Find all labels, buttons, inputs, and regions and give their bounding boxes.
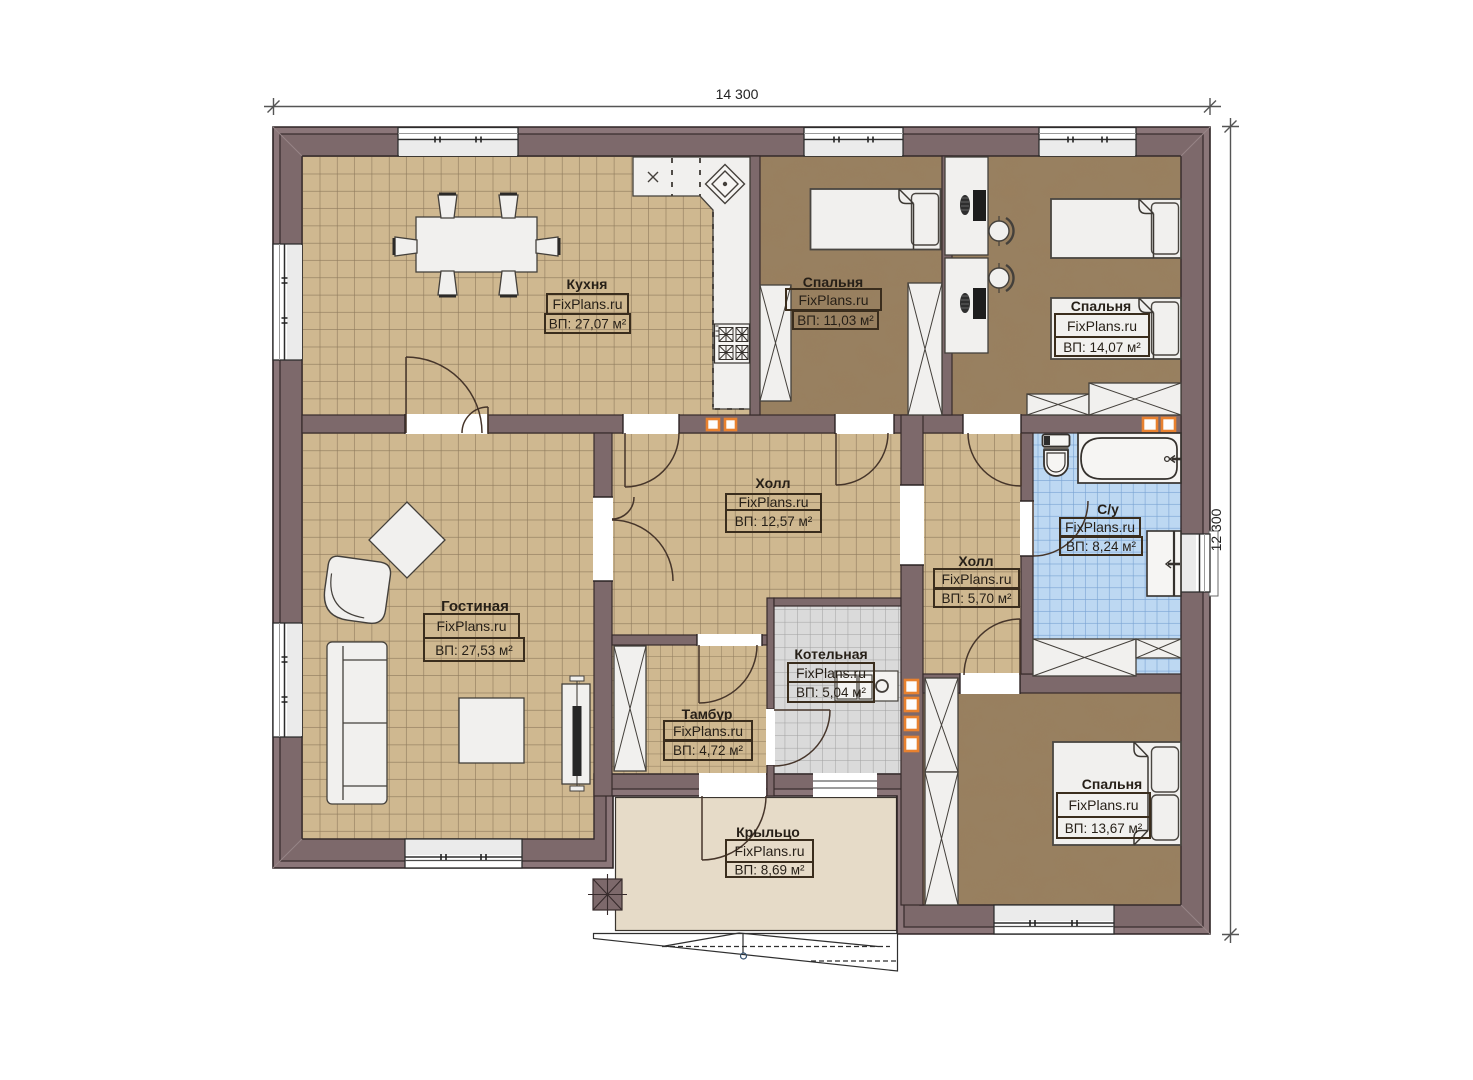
svg-text:FixPlans.ru: FixPlans.ru: [1068, 797, 1138, 813]
svg-text:ВП: 5,70 м²: ВП: 5,70 м²: [941, 591, 1012, 606]
svg-text:FixPlans.ru: FixPlans.ru: [798, 292, 868, 308]
svg-text:FixPlans.ru: FixPlans.ru: [941, 571, 1011, 587]
svg-text:Тамбур: Тамбур: [682, 706, 733, 722]
svg-text:Холл: Холл: [755, 475, 790, 491]
svg-text:ВП: 8,69 м²: ВП: 8,69 м²: [734, 863, 805, 878]
svg-text:ВП: 12,57 м²: ВП: 12,57 м²: [735, 514, 813, 529]
svg-text:ВП: 27,07 м²: ВП: 27,07 м²: [549, 317, 627, 332]
svg-text:Крыльцо: Крыльцо: [736, 824, 800, 840]
svg-text:ВП: 14,07 м²: ВП: 14,07 м²: [1063, 340, 1141, 355]
svg-text:FixPlans.ru: FixPlans.ru: [734, 843, 804, 859]
svg-text:ВП: 27,53 м²: ВП: 27,53 м²: [435, 643, 513, 658]
svg-text:12 300: 12 300: [1208, 508, 1224, 551]
svg-text:Спальня: Спальня: [803, 274, 863, 290]
svg-text:FixPlans.ru: FixPlans.ru: [796, 665, 866, 681]
svg-text:ВП: 4,72 м²: ВП: 4,72 м²: [673, 743, 744, 758]
svg-text:ВП: 5,04 м²: ВП: 5,04 м²: [796, 685, 867, 700]
svg-text:ВП: 13,67 м²: ВП: 13,67 м²: [1065, 821, 1143, 836]
svg-text:Гостиная: Гостиная: [441, 598, 509, 615]
svg-text:FixPlans.ru: FixPlans.ru: [738, 494, 808, 510]
svg-text:Спальня: Спальня: [1082, 776, 1142, 792]
svg-text:FixPlans.ru: FixPlans.ru: [436, 618, 506, 634]
svg-text:Холл: Холл: [958, 553, 993, 569]
svg-text:Котельная: Котельная: [794, 646, 867, 662]
svg-text:FixPlans.ru: FixPlans.ru: [552, 296, 622, 312]
svg-text:FixPlans.ru: FixPlans.ru: [673, 723, 743, 739]
svg-text:ВП: 8,24 м²: ВП: 8,24 м²: [1066, 539, 1137, 554]
svg-text:Спальня: Спальня: [1071, 298, 1131, 314]
svg-text:ВП: 11,03 м²: ВП: 11,03 м²: [797, 313, 874, 328]
svg-text:14 300: 14 300: [716, 86, 759, 102]
svg-text:FixPlans.ru: FixPlans.ru: [1067, 318, 1137, 334]
svg-text:FixPlans.ru: FixPlans.ru: [1065, 519, 1135, 535]
svg-text:С/у: С/у: [1097, 501, 1119, 517]
svg-text:Кухня: Кухня: [567, 276, 608, 292]
